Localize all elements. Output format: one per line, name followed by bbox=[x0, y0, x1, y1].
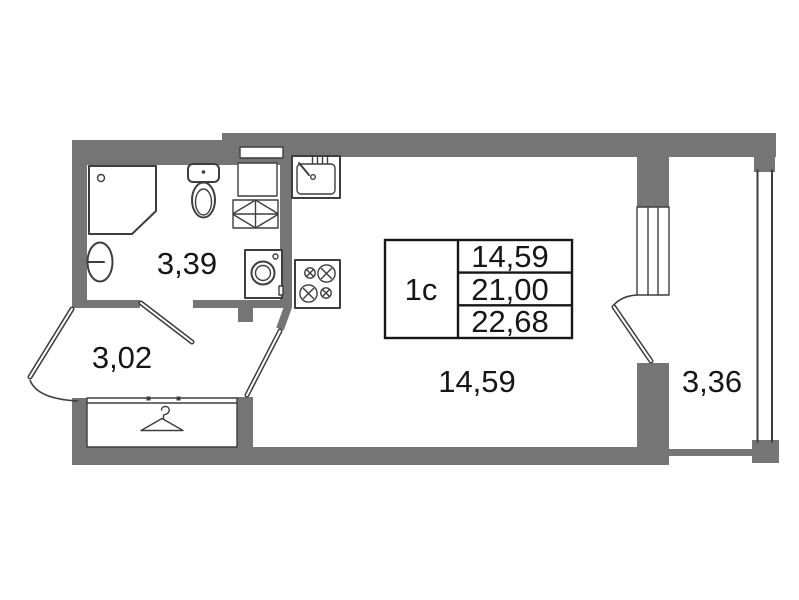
bathroom-area-label: 3,39 bbox=[157, 246, 217, 281]
entry-door bbox=[30, 309, 78, 401]
wall-balcony-divider-top bbox=[637, 140, 669, 207]
wardrobe bbox=[87, 397, 237, 448]
kitchen-sink-icon bbox=[292, 156, 340, 198]
wall-chamfer-stub bbox=[280, 307, 288, 329]
table-value-total-area: 21,00 bbox=[471, 272, 549, 307]
table-value-living-area: 14,59 bbox=[471, 239, 549, 274]
bathroom-door bbox=[141, 303, 192, 342]
vent-shelf-icon bbox=[233, 200, 278, 228]
balcony-door-swing-arc bbox=[613, 295, 637, 306]
floor-plan-page: 1с 14,59 21,00 22,68 3,39 3,02 14,59 3,3… bbox=[0, 0, 799, 600]
wall-balcony-bottom-edge bbox=[669, 449, 756, 456]
unit-type-label: 1с bbox=[405, 272, 438, 307]
window-balcony-divider bbox=[637, 207, 669, 295]
wall-balcony-post-bottom bbox=[752, 440, 779, 463]
wall-bath-south-right bbox=[193, 300, 290, 308]
entry-door-swing-arc bbox=[30, 380, 78, 401]
washbasin-icon bbox=[87, 243, 113, 282]
washing-machine-icon bbox=[245, 250, 283, 298]
wall-stub-below-bath bbox=[238, 308, 253, 322]
wall-hall-divider bbox=[237, 397, 253, 447]
balcony-area-label: 3,36 bbox=[682, 364, 742, 399]
stove-icon bbox=[295, 260, 340, 308]
hallway-area-label: 3,02 bbox=[92, 340, 152, 375]
wall-bottom bbox=[72, 447, 667, 465]
floor-plan-drawing: 1с 14,59 21,00 22,68 3,39 3,02 14,59 3,3… bbox=[0, 0, 799, 600]
wall-left-upper bbox=[72, 140, 87, 307]
living-room-area-label: 14,59 bbox=[438, 364, 516, 399]
toilet-icon bbox=[188, 164, 219, 218]
shower-icon bbox=[89, 166, 156, 234]
wall-niche bbox=[240, 147, 283, 158]
living-room-door bbox=[247, 331, 280, 395]
wall-bath-south-left bbox=[72, 300, 140, 308]
table-value-total-with-balcony: 22,68 bbox=[471, 304, 549, 339]
kitchen-fixtures bbox=[292, 156, 340, 308]
info-table: 1с 14,59 21,00 22,68 bbox=[385, 239, 572, 339]
wall-balcony-divider-bottom bbox=[637, 363, 669, 465]
bathroom-cabinet bbox=[238, 163, 277, 196]
balcony-glazing bbox=[758, 170, 773, 442]
balcony-door bbox=[613, 295, 651, 361]
wall-top-main bbox=[222, 133, 776, 157]
